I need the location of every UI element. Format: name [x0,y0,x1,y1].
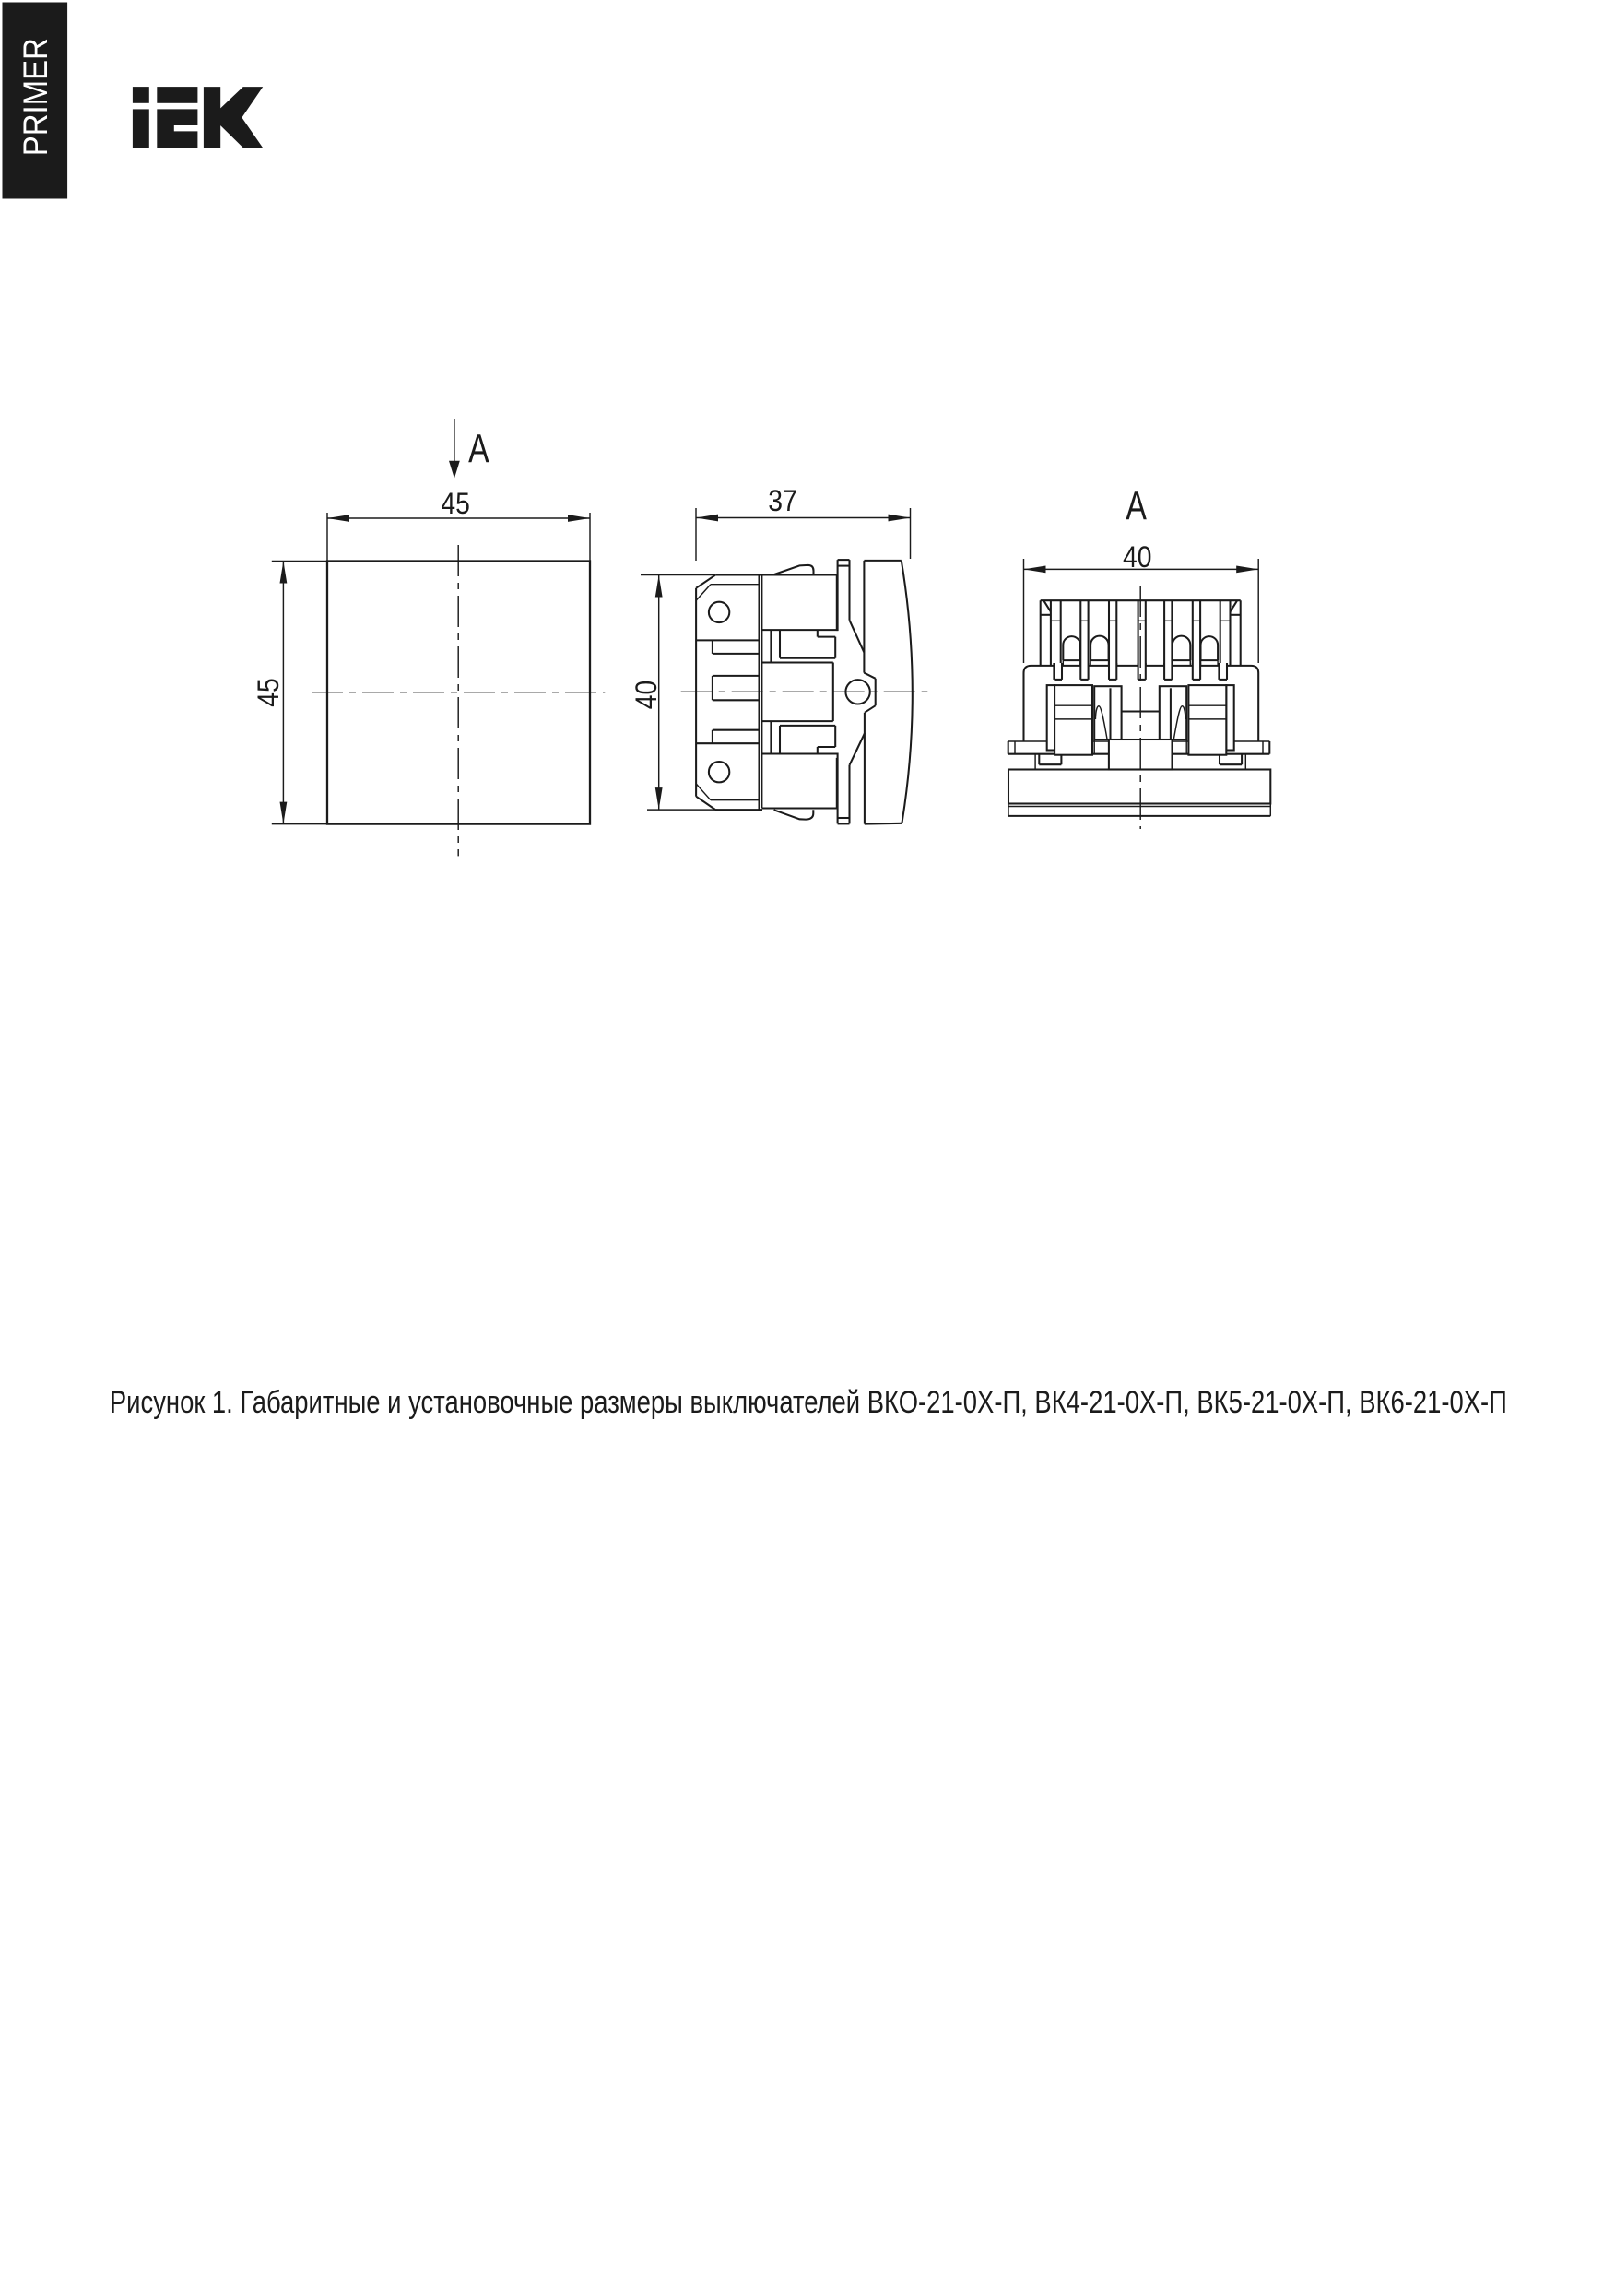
svg-text:40: 40 [1123,540,1152,574]
svg-text:A: A [1126,483,1147,528]
svg-text:Рисунок 1. Габаритные и устано: Рисунок 1. Габаритные и установочные раз… [110,1385,1507,1420]
svg-text:45: 45 [252,678,285,707]
svg-text:A: A [468,427,489,472]
svg-text:PRIMER: PRIMER [17,38,54,156]
svg-text:45: 45 [441,487,470,520]
svg-text:40: 40 [630,681,663,710]
svg-text:37: 37 [768,484,797,517]
